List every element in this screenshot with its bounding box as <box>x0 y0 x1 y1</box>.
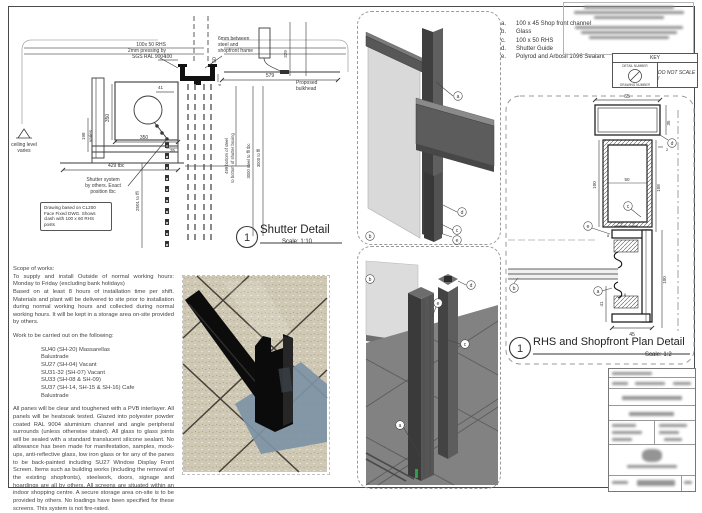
plan-detail-scale: Scale: 1:2 <box>645 352 672 358</box>
dim: 35 <box>666 120 671 126</box>
dim: 41 <box>158 85 164 90</box>
unit-item: Balustrade <box>41 354 174 362</box>
gap-label: 6mm between steel and shopfront frame <box>218 36 262 54</box>
note-key: e. <box>501 53 516 61</box>
plan-detail-drawing: d c b e a 65 35 2 100 50 108 13 9 8 41 6… <box>500 90 700 372</box>
tag-e: e <box>437 301 440 307</box>
shutter-box <box>115 82 178 140</box>
rhs-pressing-label: 100x 50 RHS 2mm pressing by SGS RAL 9004 <box>118 42 166 60</box>
dim: 100 <box>592 181 597 189</box>
shopfront-channel-section <box>178 64 217 85</box>
scope-of-works: Scope of works: To supply and install Ou… <box>13 266 174 513</box>
tag-a: a <box>399 423 402 429</box>
level-marker-icon <box>16 129 32 138</box>
tag-a: a <box>457 94 460 100</box>
shutter-guide-photo <box>183 276 327 472</box>
note-text: 100 x 50 RHS <box>516 37 553 45</box>
dim: 429 tbc <box>108 163 125 169</box>
drawing-number-label: DRAWING NUMBER <box>613 83 657 87</box>
dim: 579 <box>266 73 275 79</box>
tag-e: e <box>587 224 590 230</box>
tag-b: b <box>513 286 516 292</box>
dim: 65 <box>624 94 630 100</box>
unit-item: SU40 (SH-20) Massarellas <box>41 347 174 355</box>
key-box: KEY DETAIL NUMBER DRAWING NUMBER DO NOT … <box>612 53 698 88</box>
dim: 350 <box>140 135 149 141</box>
scope-heading: Scope of works: <box>13 266 174 274</box>
title-block-blurred <box>608 368 696 492</box>
dim: 499 bottom of steel <box>224 138 229 174</box>
dim: 100 <box>662 276 667 284</box>
dim: 198 <box>81 132 86 140</box>
note-text: Glass <box>516 28 531 36</box>
shopfront-channel-plan <box>595 105 660 135</box>
tag-b: b <box>369 277 372 283</box>
note-key: c. <box>501 37 516 45</box>
iso-lower-view: b d e c a <box>358 247 498 485</box>
scope-para2: All panes will be clear and toughened wi… <box>13 406 174 513</box>
tag-d: d <box>470 283 473 289</box>
note-key: d. <box>501 45 516 53</box>
detail-number-symbol-icon <box>627 68 643 84</box>
key-title: KEY <box>613 54 697 63</box>
dim: 41 <box>599 301 604 307</box>
dim: 2 <box>666 147 669 152</box>
dim: 2501 to ffl <box>135 191 140 211</box>
dim: 35 <box>170 148 176 153</box>
dim: 350 <box>105 114 111 123</box>
dim: 3000 to ffl <box>256 149 261 167</box>
shutter-guide-3d <box>424 172 434 242</box>
shutter-detail-title: Shutter Detail <box>260 224 330 236</box>
dim: 13 <box>618 220 623 225</box>
shutter-detail-number: 1 <box>244 232 250 244</box>
glass-panel <box>368 46 420 238</box>
rhs-section <box>603 140 652 227</box>
dim: 6 <box>217 83 222 86</box>
tag-b: b <box>369 234 372 240</box>
scope-work-heading: Work to be carried out on the following: <box>13 333 174 341</box>
note-key: a. <box>501 20 516 28</box>
do-not-scale-label: DO NOT SCALE ! <box>658 70 697 82</box>
dim: 50 <box>212 57 218 63</box>
dim: 108 <box>656 184 661 192</box>
note-text: Shutter Guide <box>516 45 553 53</box>
plan-detail-title: RHS and Shopfront Plan Detail <box>533 336 685 348</box>
iso-upper-view: a d c e b <box>358 12 498 242</box>
tag-a: a <box>597 289 600 295</box>
dim: 50 <box>624 177 630 182</box>
ceiling-level-label: ceiling level varies <box>8 142 40 154</box>
tag-d: d <box>461 210 464 216</box>
shutter-detail-scale: Scale: 1:10 <box>282 239 312 245</box>
dim: 329 <box>283 50 288 58</box>
shutter-system-label: Shutter system by others. Exact position… <box>78 177 128 195</box>
guide-post-right <box>438 287 448 459</box>
dim: varies <box>88 129 93 142</box>
note-key: b. <box>501 28 516 36</box>
unit-item: SU33 (SH-08 & SH-09) <box>41 377 174 385</box>
dim: 3000 steel to ffl tbc <box>246 143 251 178</box>
tag-d: d <box>671 141 674 147</box>
unit-item: Balustrade <box>41 393 174 401</box>
guide-post-left <box>408 293 421 481</box>
clash-note-box: Drawing based on CL200 Face Fixed DWG. S… <box>40 202 112 231</box>
unit-item: SU37 (SH-14, SH-15 & SH-16) Cafe <box>41 385 174 393</box>
scope-unit-list: SU40 (SH-20) Massarellas Balustrade SU27… <box>41 347 174 400</box>
dim: to bottom of shutter boxing <box>230 133 235 183</box>
approval-stamp-blurred <box>563 2 694 55</box>
scope-para1: To supply and install Outside of normal … <box>13 274 174 327</box>
unit-item: SU31-32 (SH-07) Vacant <box>41 370 174 378</box>
drawing-sheet-page: { "shutter_detail": { "number": "1", "ti… <box>0 0 702 502</box>
tag-e: e <box>456 238 459 244</box>
plan-detail-number: 1 <box>517 343 523 355</box>
unit-item: SU27 (SH-04) Vacant <box>41 362 174 370</box>
bulkhead-label: Proposed bulkhead <box>296 80 328 92</box>
